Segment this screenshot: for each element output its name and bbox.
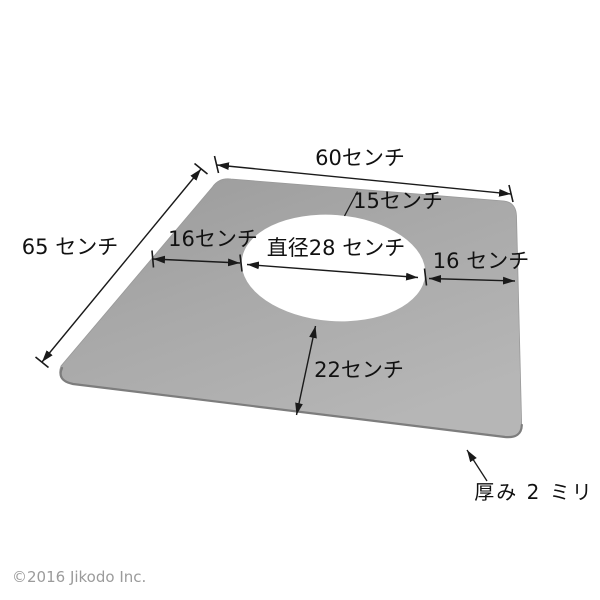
dim-hole-top-offset: 15センチ (345, 189, 443, 216)
dim-label-top-width: 60センチ (315, 146, 405, 170)
dimension-diagram-svg: 60センチ 65 センチ 15センチ 16センチ 直径28 センチ (0, 0, 600, 600)
copyright-text: ©2016 Jikodo Inc. (12, 568, 146, 586)
thickness-callout: 厚み 2 ミリ (467, 450, 594, 504)
diagram-canvas: 60センチ 65 センチ 15センチ 16センチ 直径28 センチ (0, 0, 600, 600)
dim-label-hole-right-offset: 16 センチ (433, 249, 529, 273)
dim-label-hole-left-offset: 16センチ (168, 227, 258, 251)
dim-label-hole-top-offset: 15センチ (353, 189, 443, 213)
thickness-label: 厚み 2 ミリ (474, 480, 593, 504)
dim-label-left-height: 65 センチ (22, 235, 118, 259)
dim-label-hole-bottom-offset: 22センチ (314, 358, 404, 382)
dim-label-hole-diameter: 直径28 センチ (267, 236, 405, 260)
